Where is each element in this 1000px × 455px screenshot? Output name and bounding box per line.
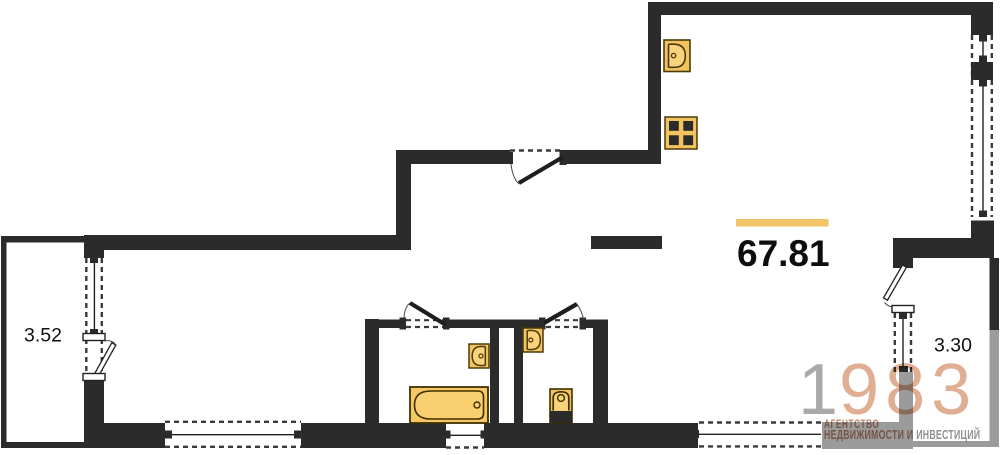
svg-text:67.81: 67.81 [737, 233, 830, 274]
svg-text:3.52: 3.52 [24, 325, 62, 347]
svg-text:НЕДВИЖИМОСТИ И ИНВЕСТИЦИЙ: НЕДВИЖИМОСТИ И ИНВЕСТИЦИЙ [824, 427, 980, 442]
